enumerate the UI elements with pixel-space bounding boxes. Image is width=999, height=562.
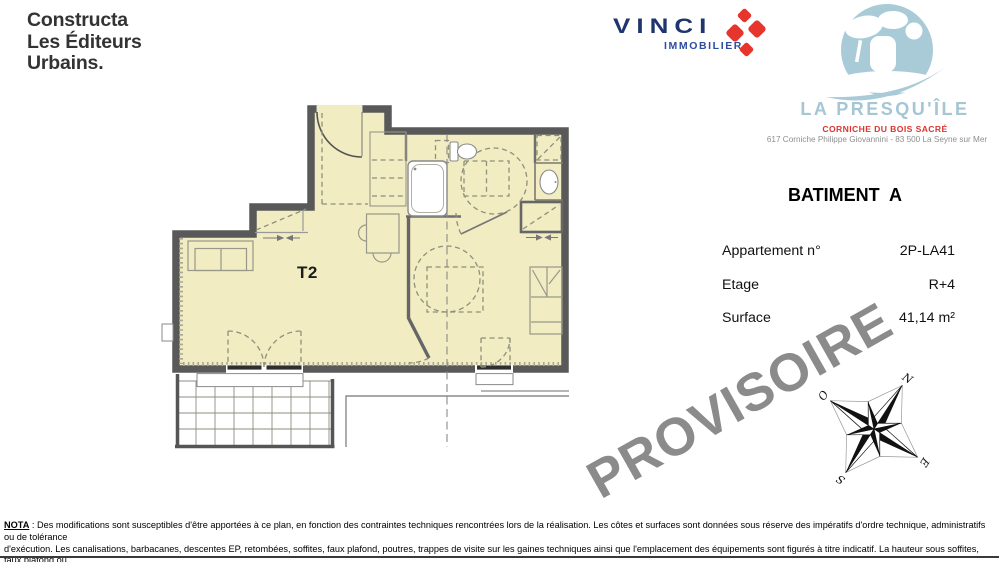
bathtub xyxy=(408,161,447,216)
plan-sheet: Constructa Les Éditeurs Urbains. VINCI I… xyxy=(0,0,999,562)
bedroom-window xyxy=(475,365,513,385)
nota-label: NOTA xyxy=(4,520,29,530)
unit-type-label: T2 xyxy=(297,263,318,283)
nota-line-1: NOTA : Des modifications sont susceptibl… xyxy=(4,520,996,544)
sink xyxy=(540,170,558,194)
neighbor-terrace-outline xyxy=(346,396,569,447)
facade-detail xyxy=(162,324,173,341)
nota-line-2: d'exécution. Les canalisations, barbacan… xyxy=(4,544,996,562)
toilet xyxy=(450,142,477,161)
bottom-rule xyxy=(0,556,999,558)
